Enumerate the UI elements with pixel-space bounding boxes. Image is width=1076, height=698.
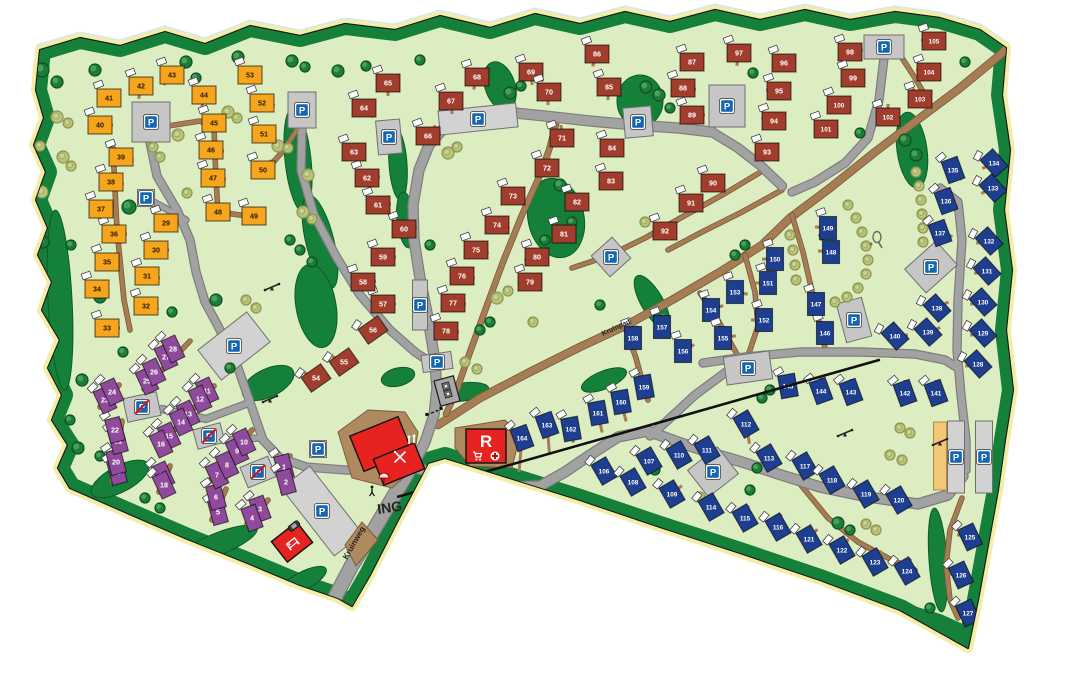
house-number: 2 <box>284 477 288 486</box>
house-number: 39 <box>117 152 125 161</box>
house-number: 90 <box>709 178 717 187</box>
evergreen-tree <box>51 76 63 88</box>
deciduous-tree <box>452 142 462 152</box>
tree-highlight <box>296 246 301 251</box>
evergreen-tree <box>332 65 344 77</box>
tree-highlight <box>37 143 42 148</box>
deciduous-tree <box>35 141 45 151</box>
tree-highlight <box>517 82 522 87</box>
house-number: 91 <box>687 198 695 207</box>
parking-sign-letter: P <box>417 300 424 311</box>
house-number: 103 <box>915 96 926 103</box>
deciduous-tree <box>283 143 293 153</box>
tree-highlight <box>555 180 561 186</box>
deciduous-tree <box>885 450 895 460</box>
tree-highlight <box>853 215 858 220</box>
house-number: 97 <box>735 48 743 57</box>
tree-highlight <box>157 154 162 159</box>
deciduous-tree <box>241 295 251 305</box>
evergreen-tree <box>285 235 295 245</box>
tree-highlight <box>916 183 921 188</box>
tree-highlight <box>897 425 902 430</box>
seesaw-seat <box>262 401 265 404</box>
tree-highlight <box>913 169 918 174</box>
house-number: 7 <box>215 470 219 479</box>
house-number: 58 <box>359 277 367 286</box>
evergreen-tree <box>72 442 84 454</box>
deciduous-tree <box>905 428 915 438</box>
tree-highlight <box>900 135 906 141</box>
house-number: 105 <box>929 38 940 45</box>
deciduous-tree <box>911 167 921 177</box>
tree-highlight <box>844 294 849 299</box>
seesaw-seat <box>946 438 949 441</box>
house-number: 45 <box>210 118 218 127</box>
parking-sign-letter: P <box>851 315 858 326</box>
tree-highlight <box>918 197 923 202</box>
house-number: 139 <box>923 329 934 336</box>
parking-sign-letter: P <box>635 117 642 128</box>
house-number: 141 <box>931 390 942 397</box>
holiday-park-map: 1234567891011121314151617181920212223242… <box>0 0 1076 698</box>
house-number: 130 <box>978 299 989 306</box>
house-number: 156 <box>678 348 689 355</box>
parking-sign: P <box>923 259 938 274</box>
tree-highlight <box>833 518 839 524</box>
deciduous-tree <box>861 241 871 251</box>
house-number: 76 <box>458 271 466 280</box>
deciduous-tree <box>182 188 192 198</box>
tree-highlight <box>66 416 71 421</box>
tree-highlight <box>856 129 861 134</box>
parking-sign-letter: P <box>953 452 960 463</box>
house-number: 149 <box>823 225 834 232</box>
house-number: 44 <box>200 90 208 99</box>
tree-highlight <box>416 56 421 61</box>
house-number: 75 <box>472 245 480 254</box>
house-number: 89 <box>688 110 696 119</box>
seesaw-seat <box>851 429 854 432</box>
deciduous-tree <box>851 213 861 223</box>
parking-sign-letter: P <box>434 357 441 368</box>
tree-highlight <box>226 364 231 369</box>
house-number: 66 <box>424 131 432 140</box>
house-number: 104 <box>924 69 935 76</box>
house-number: 81 <box>560 229 568 238</box>
house-number: 101 <box>821 126 832 133</box>
evergreen-tree <box>300 62 310 72</box>
bus-window <box>450 476 453 482</box>
tree-highlight <box>865 257 870 262</box>
evergreen-tree <box>415 55 425 65</box>
house-number: 60 <box>400 224 408 233</box>
tree-highlight <box>845 202 850 207</box>
house-number: 132 <box>984 238 995 245</box>
tree-highlight <box>362 62 367 67</box>
house-number: 73 <box>509 191 517 200</box>
no-parking-sign: P <box>134 399 149 414</box>
house-number: 109 <box>667 491 678 498</box>
deciduous-tree <box>251 303 261 313</box>
tree-highlight <box>474 366 479 371</box>
evergreen-tree <box>832 517 844 529</box>
house-number: 87 <box>688 57 696 66</box>
deciduous-tree <box>785 230 795 240</box>
tree-highlight <box>863 271 868 276</box>
parking-lot <box>458 476 506 509</box>
house-number: 111 <box>702 447 712 454</box>
tree-highlight <box>65 120 70 125</box>
house-number: 88 <box>679 83 687 92</box>
house-number: 64 <box>360 103 368 112</box>
park-map-page: 1234567891011121314151617181920212223242… <box>0 0 1076 698</box>
parking-sign: P <box>705 464 720 479</box>
house-number: 126 <box>956 572 967 579</box>
house-number: 63 <box>350 147 358 156</box>
parking-sign-letter: P <box>608 252 615 263</box>
deciduous-tree <box>791 275 801 285</box>
house-number: 56 <box>369 325 377 334</box>
house-number: 163 <box>542 422 553 429</box>
deciduous-tree <box>63 118 73 128</box>
house-number: 78 <box>442 326 450 335</box>
house-number: 43 <box>168 70 176 79</box>
house-number: 28 <box>169 344 177 353</box>
tree-highlight <box>476 326 481 331</box>
deciduous-tree <box>861 519 871 529</box>
deciduous-tree <box>51 111 63 123</box>
house-number: 154 <box>706 307 717 314</box>
deciduous-tree <box>302 169 314 181</box>
evergreen-tree <box>361 61 371 71</box>
house-number: 107 <box>644 458 655 465</box>
parking-sign-letter: P <box>479 487 486 498</box>
tree-highlight <box>454 144 459 149</box>
parking-sign: P <box>314 503 329 518</box>
tree-highlight <box>150 144 155 149</box>
tree-highlight <box>181 57 187 63</box>
barrier-post <box>425 413 428 416</box>
house-number: 48 <box>214 207 222 216</box>
bus-window <box>442 475 445 481</box>
house-number: 3 <box>258 504 262 513</box>
tree-highlight <box>233 52 239 58</box>
house-number: 157 <box>657 324 668 331</box>
house-number: 120 <box>894 497 905 504</box>
house-number: 152 <box>759 317 770 324</box>
house-number: 34 <box>93 284 101 293</box>
deciduous-tree <box>861 269 871 279</box>
parking-sign: P <box>876 39 891 54</box>
sand-strip <box>934 422 947 490</box>
parking-sign-letter: P <box>148 117 155 128</box>
house-number: 137 <box>935 230 946 237</box>
tree-highlight <box>462 359 467 364</box>
tree-highlight <box>96 452 101 457</box>
evergreen-tree <box>504 87 516 99</box>
house-number: 62 <box>363 173 371 182</box>
house-number: 37 <box>97 204 105 213</box>
deciduous-tree <box>897 455 907 465</box>
house-number: 29 <box>162 218 170 227</box>
house-number: 140 <box>890 333 901 340</box>
parking-sign-letter: P <box>928 262 935 273</box>
tree-highlight <box>887 452 892 457</box>
tree-highlight <box>67 241 72 246</box>
evergreen-tree <box>640 81 652 93</box>
house-number: 77 <box>449 298 457 307</box>
house-number: 35 <box>103 257 111 266</box>
house-number: 150 <box>770 256 781 263</box>
house-number: 123 <box>870 559 881 566</box>
house-number: 79 <box>526 277 534 286</box>
tree-highlight <box>961 58 966 63</box>
parking-sign-letter: P <box>881 42 888 53</box>
parking-sign-letter: P <box>319 506 326 517</box>
bus-body <box>438 472 455 483</box>
parking-sign: P <box>226 338 241 353</box>
gray-building <box>496 489 548 529</box>
deciduous-tree <box>916 195 926 205</box>
parking-sign-letter: P <box>475 114 482 125</box>
tree-highlight <box>911 150 917 156</box>
house-number: 49 <box>250 211 258 220</box>
house-number: 155 <box>718 335 729 342</box>
tree-highlight <box>475 489 480 494</box>
tree-crown <box>485 495 495 505</box>
evergreen-tree <box>899 134 911 146</box>
house-number: 82 <box>573 197 581 206</box>
house-number: 144 <box>816 388 827 395</box>
house-number: 61 <box>374 200 382 209</box>
parking-sign: P <box>381 129 396 144</box>
house-number: 6 <box>214 492 218 501</box>
parking-sign-frame <box>474 484 489 499</box>
no-parking-sign: P <box>201 428 216 443</box>
no-parking-sign: P <box>250 464 265 479</box>
cart-wheel <box>479 459 481 461</box>
parking-sign: P <box>474 484 489 499</box>
tree-highlight <box>59 153 65 159</box>
house-number: 92 <box>661 226 669 235</box>
evergreen-tree <box>745 485 755 495</box>
tree-highlight <box>568 218 573 223</box>
parking-sign-box <box>476 486 489 499</box>
house-number: 124 <box>902 568 913 575</box>
tree-highlight <box>505 288 510 293</box>
tree-highlight <box>863 243 868 248</box>
parking-sign: P <box>470 111 485 126</box>
house-number: 42 <box>137 81 145 90</box>
house-number: 116 <box>773 524 784 531</box>
seesaw-seat <box>264 289 267 292</box>
tree-highlight <box>234 115 239 120</box>
deciduous-tree <box>57 151 69 163</box>
fork-head <box>394 451 396 453</box>
deciduous-tree <box>853 283 863 293</box>
house-number: 143 <box>846 389 857 396</box>
evergreen-tree <box>140 493 150 503</box>
house-number: 40 <box>96 120 104 129</box>
house-number: 12 <box>196 394 204 403</box>
house-number: 135 <box>948 167 959 174</box>
house-number: 162 <box>566 426 577 433</box>
deciduous-tree <box>503 286 513 296</box>
tree-highlight <box>119 348 124 353</box>
aid-cross-v <box>494 453 496 459</box>
house-number: 55 <box>340 357 348 366</box>
evergreen-tree <box>485 317 495 327</box>
tree-highlight <box>19 279 24 284</box>
evergreen-tree <box>66 240 76 250</box>
parking-sign: P <box>138 190 153 205</box>
house-number: 74 <box>493 220 501 229</box>
tree-highlight <box>487 497 492 502</box>
deciduous-tree <box>232 113 242 123</box>
tennis-ball <box>870 243 873 246</box>
house-number: 153 <box>730 289 741 296</box>
house-number: 122 <box>837 547 848 554</box>
evergreen-tree <box>307 257 317 267</box>
aid-icon <box>491 452 500 461</box>
seesaw-seat <box>932 444 935 447</box>
tree-highlight <box>308 258 313 263</box>
deciduous-tree <box>863 255 873 265</box>
rletter-icon: R <box>480 432 492 451</box>
house-number: 53 <box>246 70 254 79</box>
evergreen-tree <box>167 307 177 317</box>
seesaw-seat <box>276 395 279 398</box>
house-number: 16 <box>157 439 165 448</box>
tree-crown <box>473 487 483 497</box>
house-number: 131 <box>982 268 993 275</box>
tree-highlight <box>90 65 96 71</box>
house-number: 84 <box>608 143 616 152</box>
evergreen-tree <box>653 89 665 101</box>
tree-highlight <box>285 145 290 150</box>
house-number: 65 <box>384 78 392 87</box>
parking-sign: P <box>846 312 861 327</box>
evergreen-tree <box>122 200 136 214</box>
house-number: 134 <box>989 160 1000 167</box>
house-number: 118 <box>827 477 838 484</box>
parking-sign: P <box>310 441 325 456</box>
house-number: 158 <box>628 335 639 342</box>
house-number: 98 <box>846 47 854 56</box>
deciduous-tree <box>914 181 924 191</box>
house-number: 95 <box>775 86 783 95</box>
evergreen-tree <box>475 325 485 335</box>
tree-highlight <box>224 108 230 114</box>
parking-sign-letter: P <box>143 193 150 204</box>
house-number: 85 <box>605 82 613 91</box>
house-number: 10 <box>240 437 248 446</box>
house-number: 106 <box>599 468 610 475</box>
evergreen-tree <box>910 149 922 161</box>
parking-sign: P <box>719 98 734 113</box>
house-number: 57 <box>379 299 387 308</box>
house-number: 68 <box>473 72 481 81</box>
tree-highlight <box>654 90 660 96</box>
house-number: 133 <box>988 185 999 192</box>
tree-crown <box>18 278 28 288</box>
house-number: 14 <box>177 417 185 426</box>
deciduous-tree <box>842 292 852 302</box>
house-number: 96 <box>780 58 788 67</box>
parking-sign: P <box>412 297 427 312</box>
tree-highlight <box>211 295 217 301</box>
tree-highlight <box>309 216 314 221</box>
parking-sign: P <box>976 449 991 464</box>
tree-highlight <box>156 504 161 509</box>
parking-sign-letter: P <box>724 101 731 112</box>
tree-highlight <box>73 443 79 449</box>
tree-highlight <box>141 494 146 499</box>
evergreen-tree <box>730 250 740 260</box>
tree-highlight <box>301 63 306 68</box>
tree-highlight <box>832 299 837 304</box>
house-number: 136 <box>941 198 952 205</box>
house-number: 20 <box>112 457 120 466</box>
evergreen-tree <box>210 294 222 306</box>
tree-highlight <box>926 604 931 609</box>
tree-highlight <box>286 236 291 241</box>
tree-highlight <box>124 202 131 209</box>
house-number: 71 <box>558 133 566 142</box>
tree-highlight <box>444 149 450 155</box>
house-number: 50 <box>259 165 267 174</box>
house-number: 94 <box>770 116 778 125</box>
house-number: 128 <box>973 361 984 368</box>
house-number: 47 <box>209 173 217 182</box>
evergreen-tree <box>425 240 435 250</box>
evergreen-tree <box>752 463 762 473</box>
parking-sign-letter: P <box>745 363 752 374</box>
house-number: 125 <box>965 534 976 541</box>
house-number: 93 <box>763 147 771 156</box>
tree-highlight <box>749 69 754 74</box>
evergreen-tree <box>286 55 298 67</box>
parking-sign: P <box>603 249 618 264</box>
evergreen-tree <box>155 503 165 513</box>
house-number: 161 <box>593 410 604 417</box>
bus-window <box>446 475 449 481</box>
seesaw-seat <box>278 283 281 286</box>
tree-highlight <box>855 285 860 290</box>
deciduous-tree <box>155 152 165 162</box>
house-number: 70 <box>545 87 553 96</box>
deciduous-tree <box>640 217 650 227</box>
house-number: 148 <box>826 249 837 256</box>
house-number: 114 <box>706 504 717 511</box>
house-number: 31 <box>143 271 151 280</box>
house-number: 142 <box>900 390 911 397</box>
evergreen-tree <box>225 363 235 373</box>
tree-highlight <box>899 457 904 462</box>
tree-highlight <box>641 82 647 88</box>
evergreen-tree <box>76 374 88 386</box>
tree-highlight <box>863 521 868 526</box>
tree-highlight <box>741 241 746 246</box>
tree-highlight <box>299 208 305 214</box>
house-number: 52 <box>258 98 266 107</box>
evergreen-tree <box>845 525 855 535</box>
house-number: 121 <box>804 536 815 543</box>
seesaw-seat <box>837 435 840 438</box>
house-number: 26 <box>150 367 158 376</box>
tree-highlight <box>287 56 293 62</box>
parking-sign: P <box>740 360 755 375</box>
